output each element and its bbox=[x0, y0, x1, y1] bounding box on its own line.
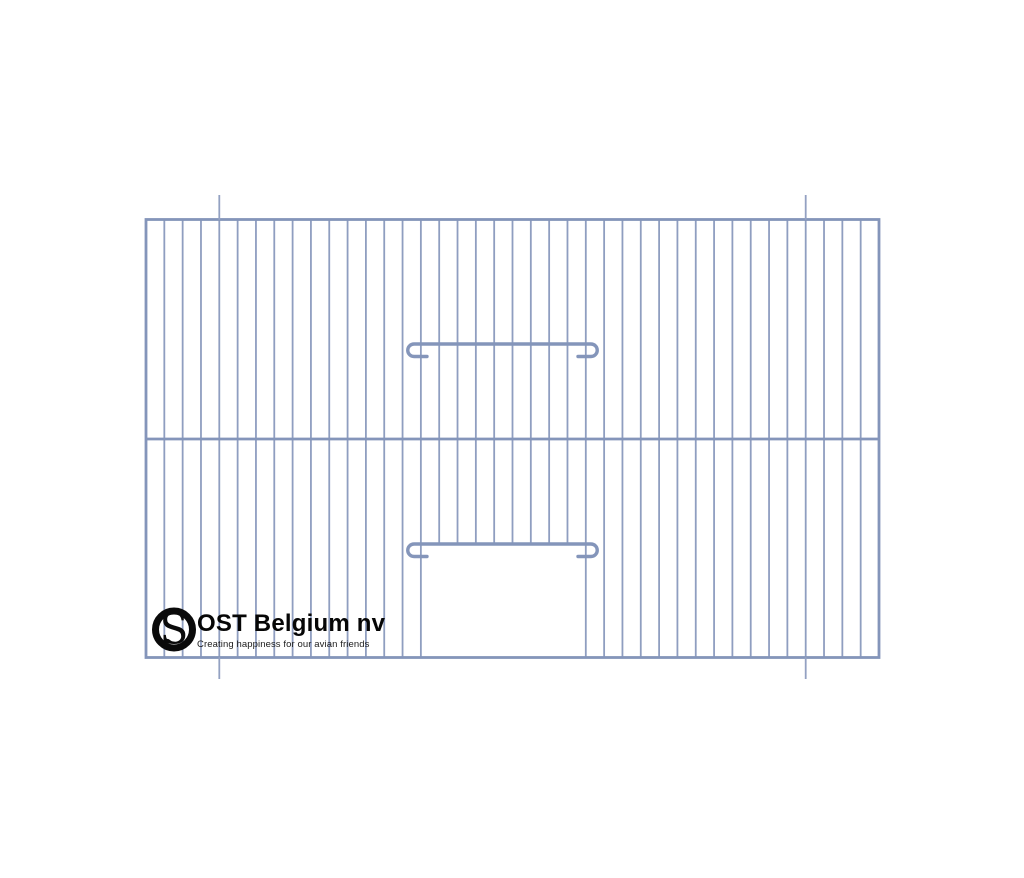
upper-door-latch bbox=[408, 344, 598, 357]
drawing-canvas: S OST Belgium nv Creating happiness for … bbox=[0, 0, 1024, 878]
lower-door-latch bbox=[408, 544, 598, 557]
cage-front-drawing bbox=[0, 0, 1024, 878]
